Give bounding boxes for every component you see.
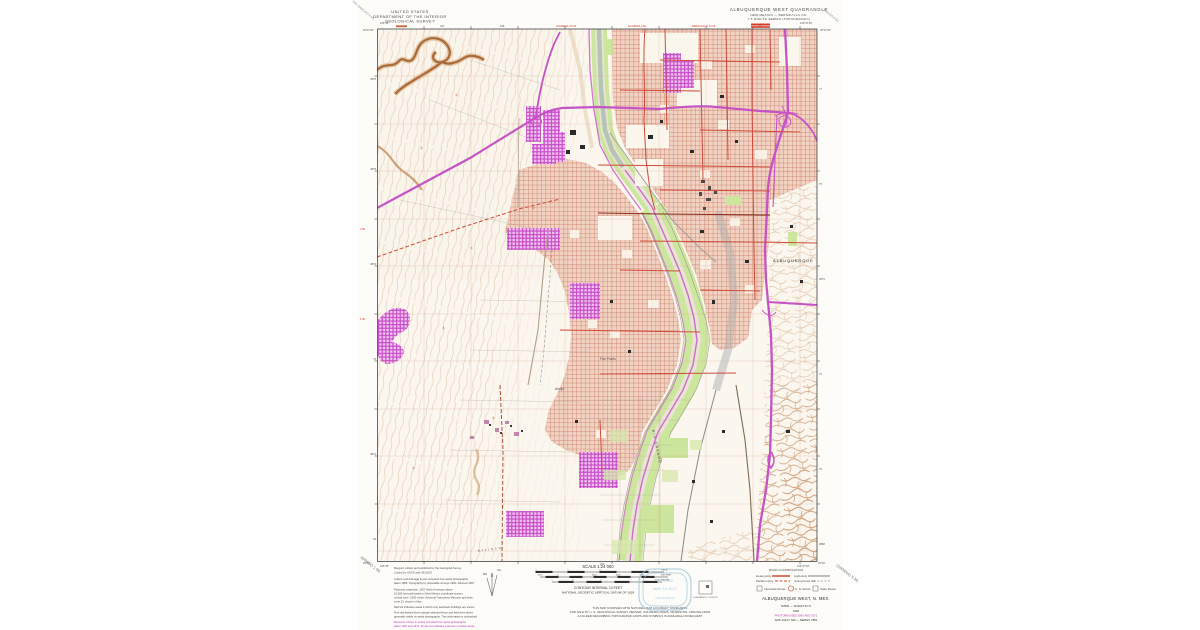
svg-text:GN: GN [497,568,501,572]
svg-text:ALAMEDA 3.5 MI.: ALAMEDA 3.5 MI. [556,24,577,28]
svg-text:106°45': 106°45' [380,564,389,568]
svg-text:Culture and drainage in part c: Culture and drainage in part compiled fr… [394,577,469,581]
svg-text:3876: 3876 [370,167,376,171]
svg-text:Interstate Route: Interstate Route [764,587,786,591]
svg-text:GEOLOGICAL SURVEY: GEOLOGICAL SURVEY [385,19,435,24]
svg-text:Mapped, edited, and published: Mapped, edited, and published by the Geo… [394,566,462,570]
svg-text:35°00': 35°00' [818,561,826,565]
svg-text:QUADRANGLE LOCATION: QUADRANGLE LOCATION [693,596,718,599]
svg-text:349: 349 [500,24,505,28]
svg-text:3871: 3871 [370,452,376,456]
svg-text:AMS 3444 II NW — SERIES V881: AMS 3444 II NW — SERIES V881 [775,618,818,622]
svg-text:Polyconic projection. 1927 No: Polyconic projection. 1927 North America… [394,588,454,592]
svg-text:7.5 MINUTE SERIES (TOPOGRAPHIC: 7.5 MINUTE SERIES (TOPOGRAPHIC) [748,17,811,21]
svg-text:taken 1967 and 1972. Purple t: taken 1967 and 1972. Purple tint indicat… [394,624,475,628]
svg-text:Control by USGS and USC&GS: Control by USGS and USC&GS [394,571,432,575]
svg-text:Heavy-duty: Heavy-duty [756,574,772,578]
svg-text:U. S. Route: U. S. Route [795,587,811,591]
svg-text:2 MI.: 2 MI. [360,227,366,231]
svg-text:RECEIVED: RECEIVED [657,579,674,583]
svg-text:1000: 1000 [538,575,544,577]
svg-text:ROAD CLASSIFICATION: ROAD CLASSIFICATION [769,568,803,572]
svg-text:taken 1959. Topography by pla: taken 1959. Topography by planetable sur… [394,581,475,585]
svg-text:MAY 13 1971: MAY 13 1971 [653,586,678,591]
svg-text:2000: 2000 [592,575,598,577]
svg-text:NATIONAL GEODETIC VERTICAL DAT: NATIONAL GEODETIC VERTICAL DATUM OF 1929 [562,591,635,595]
svg-text:ALBUQUERQUE WEST, N. MEX.: ALBUQUERQUE WEST, N. MEX. [762,596,830,601]
svg-text:BERNALILLO 14 MI.: BERNALILLO 14 MI. [692,24,716,28]
svg-text:1 MILE: 1 MILE [661,570,668,572]
svg-text:ALAMEDA 4 MI.: ALAMEDA 4 MI. [628,24,647,28]
svg-text:PHOTOREVISED 1967 AND 1972: PHOTOREVISED 1967 AND 1972 [775,614,818,618]
svg-text:State Route: State Route [820,587,836,591]
svg-text:central zone. 1000-meter Univ: central zone. 1000-meter Universal Trans… [394,596,474,600]
svg-text:1960: 1960 [793,609,800,613]
svg-text:Armijo: Armijo [555,387,564,391]
svg-text:35°07'30": 35°07'30" [363,28,374,32]
svg-text:Revisions shown in purple comp: Revisions shown in purple compiled from … [394,620,467,624]
svg-text:3874: 3874 [819,277,825,281]
svg-text:35°07'30": 35°07'30" [820,28,831,32]
svg-text:10,000-foot grid based on New: 10,000-foot grid based on New Mexico coo… [394,592,464,596]
svg-text:Unimproved dirt: Unimproved dirt [794,579,815,583]
svg-text:Fine red dashed lines indicate: Fine red dashed lines indicate selected … [394,611,474,615]
svg-text:1 MI.: 1 MI. [360,317,366,321]
svg-text:106°37'30": 106°37'30" [800,21,813,25]
svg-text:3868: 3868 [819,542,825,546]
svg-text:N3500 — W10637.5/7.5: N3500 — W10637.5/7.5 [781,604,811,608]
svg-text:Medium-duty: Medium-duty [756,579,774,583]
svg-text:4000: 4000 [616,575,622,577]
svg-text:3878: 3878 [370,77,376,81]
svg-text:7000 FEET: 7000 FEET [660,575,672,577]
svg-text:Light-duty: Light-duty [794,574,808,578]
svg-text:3874: 3874 [370,262,376,266]
svg-text:MN: MN [483,572,487,576]
svg-text:SCALE 1:24 000: SCALE 1:24 000 [582,564,614,569]
svg-text:Red tint indicates areas in wh: Red tint indicates areas in which only l… [394,605,475,609]
svg-text:MAP DIVISION: MAP DIVISION [655,596,674,600]
svg-text:ALBUQUERQUE: ALBUQUERQUE [773,258,814,263]
svg-text:generally visible on aerial ph: generally visible on aerial photographs.… [394,615,477,619]
svg-text:347: 347 [440,24,445,28]
svg-text:A FOLDER DESCRIBING TOPOGRAPHI: A FOLDER DESCRIBING TOPOGRAPHIC MAPS AND… [578,614,703,618]
svg-text:zone 13, shown in blue: zone 13, shown in blue [394,600,422,604]
svg-text:Five Points: Five Points [600,357,616,361]
svg-text:ALBUQUERQUE WEST QUADRANGLE: ALBUQUERQUE WEST QUADRANGLE [730,7,828,12]
svg-text:CONTOUR INTERVAL 10 FEET: CONTOUR INTERVAL 10 FEET [574,586,622,590]
